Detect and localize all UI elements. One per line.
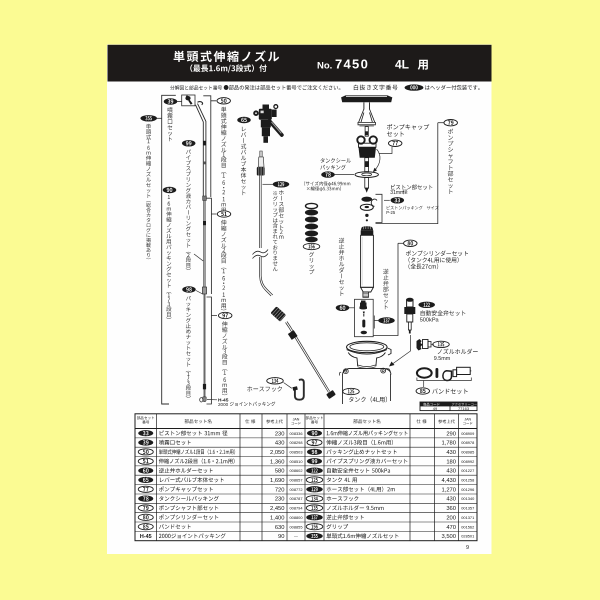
- svg-text:77163: 77163: [458, 406, 470, 411]
- svg-text:008510: 008510: [290, 459, 304, 464]
- svg-text:JAN: JAN: [464, 417, 471, 421]
- svg-text:008657: 008657: [290, 478, 303, 483]
- svg-text:008985: 008985: [461, 449, 474, 454]
- svg-text:008602: 008602: [290, 468, 303, 473]
- svg-text:4L: 4L: [395, 58, 409, 72]
- svg-text:1,270: 1,270: [441, 487, 456, 493]
- svg-text:JAN: JAN: [293, 417, 300, 421]
- svg-text:630: 630: [275, 525, 285, 531]
- svg-text:1,780: 1,780: [441, 441, 456, 447]
- svg-text:49: 49: [433, 406, 438, 411]
- svg-text:360: 360: [446, 506, 456, 512]
- svg-text:430: 430: [275, 441, 285, 447]
- svg-text:—: —: [294, 534, 298, 539]
- svg-text:9.5mm: 9.5mm: [434, 356, 451, 362]
- svg-text:230: 230: [275, 431, 285, 437]
- svg-text:No.: No.: [317, 61, 332, 72]
- svg-text:001562: 001562: [461, 524, 474, 529]
- svg-text:H-45: H-45: [140, 534, 152, 540]
- svg-text:001227: 001227: [461, 468, 474, 473]
- svg-text:7450: 7450: [335, 57, 369, 72]
- svg-text:180: 180: [446, 459, 456, 465]
- svg-text:470: 470: [446, 525, 456, 531]
- svg-text:200: 200: [446, 515, 456, 521]
- svg-text:008336: 008336: [290, 431, 303, 436]
- svg-text:001357: 001357: [461, 506, 474, 511]
- svg-text:008978: 008978: [461, 440, 474, 445]
- svg-text:2,450: 2,450: [270, 506, 285, 512]
- svg-text:008992: 008992: [461, 459, 474, 464]
- svg-text:90: 90: [278, 534, 284, 540]
- svg-text:001296: 001296: [461, 487, 474, 492]
- svg-text:008909: 008909: [461, 431, 474, 436]
- svg-text:430: 430: [446, 450, 456, 456]
- svg-text:008787: 008787: [290, 496, 303, 501]
- svg-text:430: 430: [446, 497, 456, 503]
- svg-text:P-25: P-25: [386, 210, 396, 215]
- svg-text:001258: 001258: [461, 478, 474, 483]
- svg-text:028501: 028501: [461, 534, 474, 539]
- svg-text:008772: 008772: [290, 487, 303, 492]
- svg-text:430: 430: [446, 469, 456, 475]
- svg-text:008503: 008503: [290, 449, 303, 454]
- svg-text:580: 580: [275, 469, 285, 475]
- svg-text:008800: 008800: [290, 515, 304, 520]
- svg-text:1,360: 1,360: [270, 459, 285, 465]
- svg-text:500kPa: 500kPa: [420, 318, 440, 324]
- svg-text:9: 9: [466, 545, 469, 551]
- svg-text:720: 720: [275, 487, 285, 493]
- svg-text:008855: 008855: [290, 524, 303, 529]
- svg-text:008298: 008298: [290, 440, 303, 445]
- svg-text:008794: 008794: [290, 506, 304, 511]
- svg-text:290: 290: [446, 431, 456, 437]
- svg-text:2,050: 2,050: [270, 450, 285, 456]
- svg-text:001371: 001371: [461, 515, 474, 520]
- svg-text:1,400: 1,400: [270, 515, 285, 521]
- svg-text:31mm: 31mm: [390, 190, 404, 196]
- svg-text:1,690: 1,690: [270, 478, 285, 484]
- svg-text:3,500: 3,500: [441, 534, 456, 540]
- svg-text:001340: 001340: [461, 496, 475, 501]
- svg-text:2000: 2000: [218, 402, 229, 407]
- svg-text:4,430: 4,430: [441, 478, 456, 484]
- svg-text:230: 230: [275, 497, 285, 503]
